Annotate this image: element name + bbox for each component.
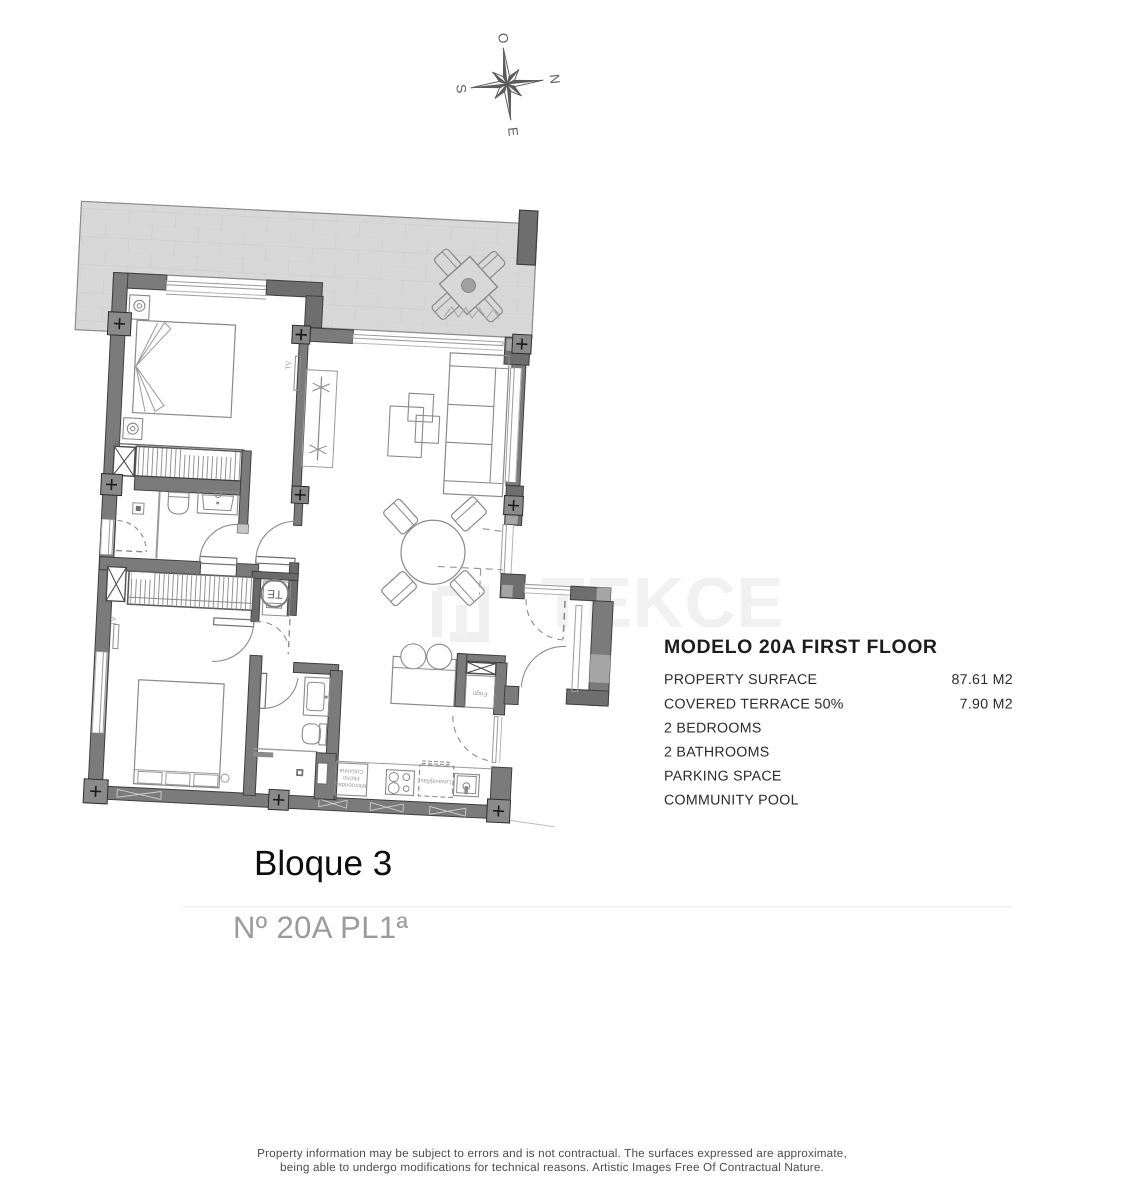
svg-text:being able to undergo modifica: being able to undergo modifications for …	[280, 1161, 824, 1174]
svg-text:N: N	[547, 73, 563, 84]
svg-text:Bloque 3: Bloque 3	[254, 844, 392, 883]
svg-text:PARKING SPACE: PARKING SPACE	[664, 769, 782, 785]
svg-text:PROPERTY SURFACE: PROPERTY SURFACE	[664, 672, 817, 688]
svg-text:TEKCE: TEKCE	[541, 564, 784, 643]
svg-text:MODELO 20A FIRST FLOOR: MODELO 20A FIRST FLOOR	[664, 636, 938, 658]
svg-text:Nº 20A PL1ª: Nº 20A PL1ª	[233, 910, 409, 945]
svg-text:COMMUNITY POOL: COMMUNITY POOL	[664, 793, 799, 809]
svg-text:TV: TV	[285, 360, 292, 370]
svg-text:2 BATHROOMS: 2 BATHROOMS	[664, 744, 770, 760]
svg-text:Columna: Columna	[339, 767, 364, 775]
svg-text:O: O	[495, 32, 511, 44]
svg-text:Property information may be su: Property information may be subject to e…	[257, 1147, 847, 1160]
svg-text:Frigo: Frigo	[472, 689, 488, 697]
svg-text:7.90 M2: 7.90 M2	[960, 696, 1013, 712]
svg-text:TE: TE	[267, 587, 283, 602]
svg-text:S: S	[453, 84, 469, 95]
svg-text:87.61 M2: 87.61 M2	[951, 672, 1013, 688]
svg-text:TV: TV	[110, 616, 117, 626]
svg-text:E: E	[505, 126, 521, 137]
svg-text:Horno: Horno	[342, 774, 359, 782]
svg-text:2 BEDROOMS: 2 BEDROOMS	[664, 720, 762, 736]
svg-text:COVERED TERRACE 50%: COVERED TERRACE 50%	[664, 696, 844, 712]
